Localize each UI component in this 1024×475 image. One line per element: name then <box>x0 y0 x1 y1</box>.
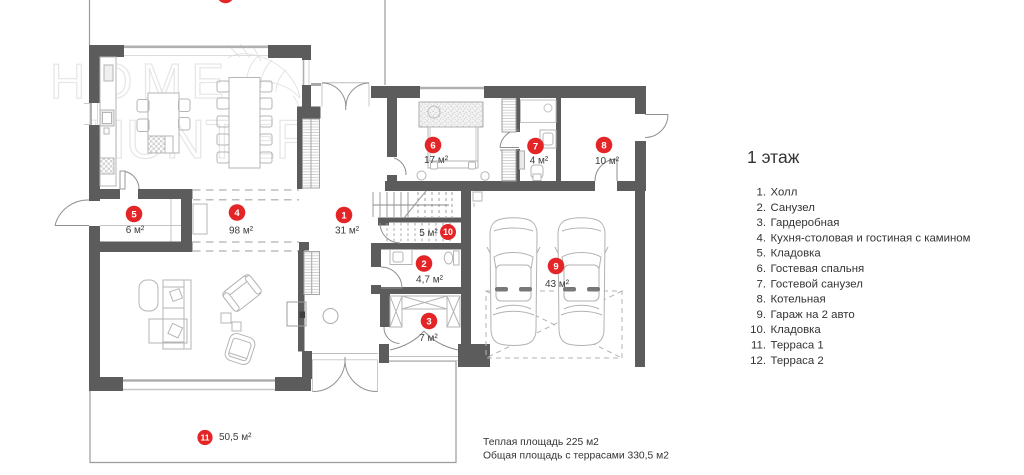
svg-text:9: 9 <box>553 261 558 272</box>
svg-text:Гостевой санузел: Гостевой санузел <box>771 278 863 290</box>
svg-text:7.: 7. <box>757 278 767 290</box>
svg-text:31 м²: 31 м² <box>335 226 360 237</box>
svg-text:Холл: Холл <box>771 187 798 199</box>
svg-text:Кладовка: Кладовка <box>771 324 822 336</box>
svg-text:2.: 2. <box>757 202 767 214</box>
svg-text:5.: 5. <box>757 248 767 260</box>
svg-text:Санузел: Санузел <box>771 202 815 214</box>
svg-text:4,7 м²: 4,7 м² <box>416 275 444 286</box>
svg-text:98 м²: 98 м² <box>229 226 254 237</box>
svg-text:1.: 1. <box>757 187 767 199</box>
svg-text:10.: 10. <box>750 324 766 336</box>
svg-text:2: 2 <box>421 259 426 270</box>
svg-text:Общая площадь с террасами 330,: Общая площадь с террасами 330,5 м2 <box>483 450 669 462</box>
svg-text:Кладовка: Кладовка <box>771 248 822 260</box>
svg-text:6: 6 <box>430 140 435 151</box>
svg-text:6.: 6. <box>757 263 767 275</box>
svg-text:10: 10 <box>443 227 453 237</box>
svg-text:11.: 11. <box>751 340 766 352</box>
svg-text:10 м²: 10 м² <box>595 156 620 167</box>
svg-text:4: 4 <box>234 208 240 219</box>
svg-text:Гардеробная: Гардеробная <box>771 217 840 229</box>
svg-text:Кухня-столовая и гостиная с ка: Кухня-столовая и гостиная с камином <box>771 232 971 244</box>
svg-text:50,5 м²: 50,5 м² <box>219 432 252 443</box>
svg-text:5: 5 <box>131 209 137 220</box>
svg-text:HUNTER: HUNTER <box>86 108 315 170</box>
svg-text:Терраса 1: Терраса 1 <box>771 340 824 352</box>
svg-text:HOME: HOME <box>50 55 233 109</box>
svg-text:Терраса 2: Терраса 2 <box>771 355 824 367</box>
svg-text:3: 3 <box>426 316 431 327</box>
svg-text:1 этаж: 1 этаж <box>747 147 800 167</box>
svg-text:17 м²: 17 м² <box>424 155 449 166</box>
svg-text:4 м²: 4 м² <box>530 156 549 167</box>
svg-text:3.: 3. <box>757 217 767 229</box>
svg-text:5 м²: 5 м² <box>419 228 438 239</box>
svg-text:7 м²: 7 м² <box>419 333 438 344</box>
svg-text:11: 11 <box>200 433 209 443</box>
svg-text:6 м²: 6 м² <box>126 225 145 236</box>
svg-text:9.: 9. <box>757 309 767 321</box>
svg-text:Теплая площадь 225 м2: Теплая площадь 225 м2 <box>483 437 599 448</box>
svg-text:Котельная: Котельная <box>771 294 826 306</box>
svg-text:12.: 12. <box>750 355 766 367</box>
svg-text:Гостевая спальня: Гостевая спальня <box>771 263 865 275</box>
svg-text:1: 1 <box>341 210 347 221</box>
svg-text:7: 7 <box>533 141 538 152</box>
svg-text:8.: 8. <box>757 294 767 306</box>
svg-text:4.: 4. <box>757 232 767 244</box>
svg-text:Гараж на 2 авто: Гараж на 2 авто <box>771 309 855 321</box>
svg-text:8: 8 <box>601 140 606 151</box>
svg-text:43 м²: 43 м² <box>545 279 570 290</box>
